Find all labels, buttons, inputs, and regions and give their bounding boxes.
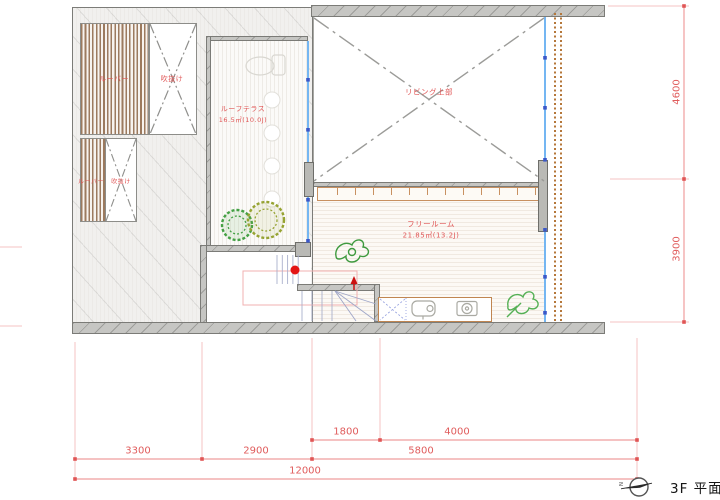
void2-label: 吹抜け	[111, 177, 131, 186]
compass-north-label: N	[619, 482, 625, 486]
freeroom-label: フリールーム 21.85㎡(13.2J)	[403, 218, 460, 241]
roof-terrace-floor	[211, 41, 308, 245]
freeroom-area: 21.85㎡(13.2J)	[403, 230, 460, 241]
dimension-lines-right	[608, 4, 689, 324]
louver2-label: ルーバー	[78, 177, 104, 186]
void1-label: 吹抜け	[161, 74, 184, 84]
louver-screen-dotted-1	[554, 13, 556, 322]
freeroom-name: フリールーム	[403, 218, 460, 230]
dim-2900: 2900	[243, 446, 268, 457]
living-void-floor	[313, 17, 545, 182]
louver1-label: ルーバー	[99, 74, 129, 84]
floor-plan-canvas: ルーバー 吹抜け ルーバー 吹抜け ルーフテラス 16.5㎡(10.0J) リビ…	[0, 0, 720, 500]
dim-4000: 4000	[444, 427, 469, 438]
louver-screen-dotted-2	[560, 13, 562, 322]
terrace-window-line	[307, 41, 309, 245]
dim-12000: 12000	[289, 466, 321, 477]
kitchen-counter	[378, 297, 492, 322]
bottom-wall	[72, 322, 605, 334]
terrace-label: ルーフテラス 16.5㎡(10.0J)	[219, 104, 267, 126]
terrace-left-wall	[206, 36, 211, 250]
stair-mid-wall	[297, 284, 380, 291]
stair-hall-left-wall	[200, 245, 207, 333]
living-label: リビング上部	[405, 87, 453, 98]
north-arrow-icon	[621, 478, 652, 496]
terrace-area: 16.5㎡(10.0J)	[219, 115, 267, 125]
terrace-top-wall	[206, 36, 308, 41]
deck-board-ticks	[320, 188, 538, 195]
living-bottom-wall	[313, 182, 545, 187]
terrace-name: ルーフテラス	[219, 104, 267, 115]
dim-5800: 5800	[408, 446, 433, 457]
drawing-title: 3F 平面図	[670, 477, 720, 497]
wall-pier-terrace-lower	[295, 242, 311, 257]
dim-3300: 3300	[125, 446, 150, 457]
dim-1800: 1800	[333, 427, 358, 438]
deck-strip	[317, 187, 541, 201]
dim-3900: 3900	[672, 236, 683, 261]
wall-pier-right	[538, 160, 548, 232]
dim-4600: 4600	[672, 79, 683, 104]
stair-hall-floor	[207, 252, 311, 322]
wall-pier-terrace	[304, 162, 314, 197]
